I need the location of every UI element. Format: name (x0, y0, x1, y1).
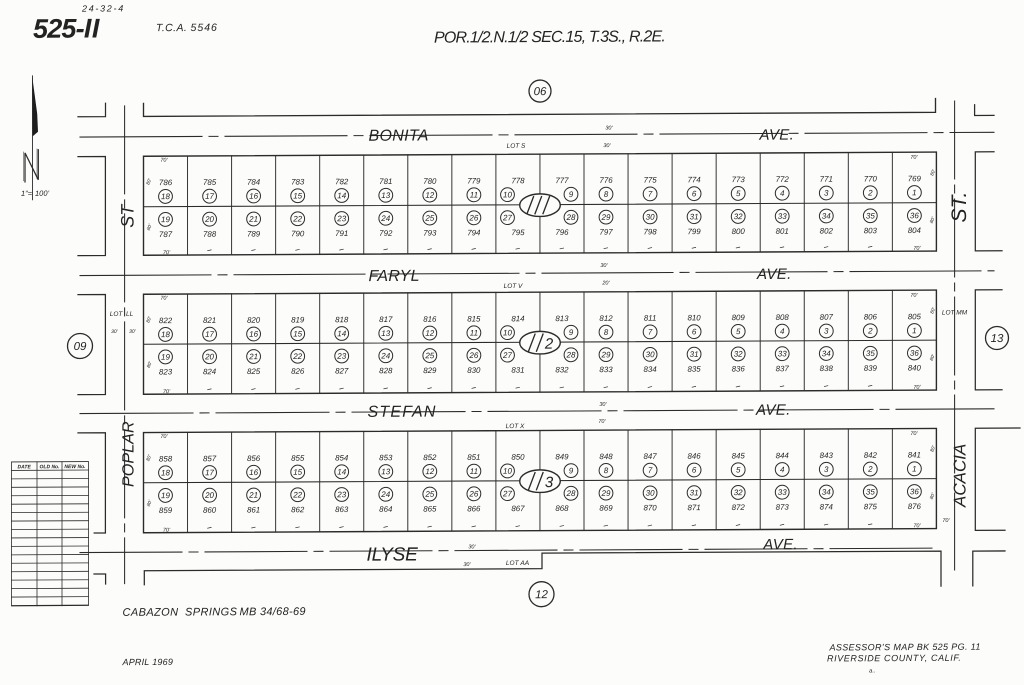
svg-text:12: 12 (425, 191, 434, 200)
svg-text:783: 783 (291, 177, 305, 186)
svg-text:27: 27 (502, 351, 512, 360)
svg-text:826: 826 (291, 367, 305, 376)
svg-text:781: 781 (379, 177, 392, 186)
svg-text:802: 802 (820, 226, 834, 235)
svg-text:70’: 70’ (160, 296, 168, 302)
svg-text:STEFAN: STEFAN (368, 404, 437, 421)
svg-text:30’: 30’ (111, 329, 119, 335)
svg-text:821: 821 (203, 316, 216, 325)
svg-text:36: 36 (910, 349, 919, 358)
svg-text:5: 5 (736, 189, 741, 198)
svg-text:17: 17 (205, 468, 214, 477)
svg-text:23: 23 (336, 490, 346, 499)
svg-text:777: 777 (555, 176, 569, 185)
svg-text:809: 809 (732, 313, 746, 322)
svg-text:25: 25 (424, 214, 434, 223)
svg-text:11: 11 (470, 190, 478, 199)
svg-text:836: 836 (732, 364, 746, 373)
svg-text:33: 33 (778, 488, 787, 497)
svg-text:LOT LL: LOT LL (110, 311, 134, 318)
svg-text:a..: a.. (869, 668, 876, 674)
svg-text:799: 799 (688, 227, 702, 236)
svg-text:22: 22 (292, 352, 302, 361)
svg-text:797: 797 (599, 228, 613, 237)
svg-text:19: 19 (161, 215, 170, 224)
svg-text:3: 3 (824, 327, 829, 336)
svg-text:14: 14 (337, 191, 346, 200)
svg-text:13: 13 (381, 329, 390, 338)
svg-text:70’: 70’ (910, 293, 918, 299)
svg-text:851: 851 (467, 453, 480, 462)
svg-text:LOT V: LOT V (504, 283, 523, 290)
svg-text:771: 771 (820, 175, 833, 184)
svg-text:24: 24 (380, 490, 390, 499)
svg-text:70’: 70’ (163, 528, 171, 534)
svg-text:818: 818 (335, 315, 349, 324)
svg-text:30: 30 (646, 489, 655, 498)
svg-text:852: 852 (423, 453, 437, 462)
svg-text:100’: 100’ (35, 189, 50, 198)
svg-text:792: 792 (379, 229, 393, 238)
svg-text:70’: 70’ (163, 250, 171, 256)
svg-text:1: 1 (912, 326, 916, 335)
svg-text:842: 842 (864, 451, 878, 460)
svg-text:30: 30 (646, 350, 655, 359)
svg-text:23: 23 (336, 352, 346, 361)
svg-text:787: 787 (159, 230, 173, 239)
svg-text:806: 806 (864, 312, 878, 321)
svg-text:21: 21 (248, 215, 258, 224)
svg-text:13: 13 (381, 467, 390, 476)
svg-text:33: 33 (778, 349, 787, 358)
svg-text:APRIL 1969: APRIL 1969 (122, 657, 174, 667)
svg-text:769: 769 (908, 174, 922, 183)
svg-text:20: 20 (204, 491, 214, 500)
svg-text:6: 6 (692, 189, 697, 198)
svg-text:813: 813 (555, 314, 569, 323)
svg-text:864: 864 (379, 505, 393, 514)
svg-text:70’: 70’ (910, 431, 918, 437)
svg-text:833: 833 (599, 365, 613, 374)
svg-text:2: 2 (867, 465, 873, 474)
svg-text:776: 776 (599, 176, 613, 185)
svg-text:29: 29 (601, 350, 611, 359)
svg-text:816: 816 (423, 315, 437, 324)
svg-text:12: 12 (425, 467, 434, 476)
svg-text:NEW No.: NEW No. (64, 464, 85, 470)
svg-text:70’: 70’ (913, 523, 921, 529)
svg-text:BONITA: BONITA (369, 127, 429, 144)
svg-text:825: 825 (247, 367, 261, 376)
svg-text:1: 1 (912, 188, 916, 197)
svg-text:32: 32 (734, 488, 743, 497)
svg-text:30’: 30’ (605, 125, 613, 131)
svg-text:30’: 30’ (600, 263, 608, 269)
svg-text:30’: 30’ (468, 544, 476, 550)
svg-text:831: 831 (511, 366, 524, 375)
svg-text:860: 860 (203, 506, 217, 515)
svg-text:11: 11 (470, 467, 478, 476)
svg-text:16: 16 (249, 192, 258, 201)
svg-text:8: 8 (604, 190, 609, 199)
svg-text:AVE.: AVE. (762, 536, 798, 553)
svg-text:9: 9 (569, 328, 574, 337)
svg-text:786: 786 (159, 178, 173, 187)
svg-text:838: 838 (820, 364, 834, 373)
svg-text:853: 853 (379, 453, 393, 462)
svg-text:850: 850 (511, 453, 525, 462)
svg-text:LOT X: LOT X (506, 423, 525, 430)
svg-text:819: 819 (291, 315, 305, 324)
svg-text:862: 862 (291, 505, 305, 514)
svg-text:12: 12 (535, 589, 548, 601)
svg-text:772: 772 (776, 175, 790, 184)
svg-text:788: 788 (203, 230, 217, 239)
svg-text:33: 33 (778, 212, 787, 221)
svg-text:870: 870 (643, 503, 657, 512)
svg-text:867: 867 (511, 504, 525, 513)
svg-text:9: 9 (569, 466, 574, 475)
svg-text:856: 856 (247, 454, 261, 463)
svg-text:2: 2 (867, 326, 873, 335)
svg-text:23: 23 (336, 214, 346, 223)
svg-text:7: 7 (648, 328, 653, 337)
svg-text:18: 18 (161, 330, 170, 339)
svg-text:16: 16 (249, 330, 258, 339)
svg-text:ILYSE: ILYSE (367, 544, 419, 565)
svg-text:ST: ST (118, 203, 138, 228)
svg-text:AVE.: AVE. (759, 127, 795, 144)
svg-text:13: 13 (991, 333, 1004, 345)
svg-text:10: 10 (503, 328, 512, 337)
svg-text:AVE.: AVE. (756, 266, 792, 283)
svg-text:16: 16 (249, 468, 258, 477)
svg-text:839: 839 (864, 364, 878, 373)
svg-text:19: 19 (161, 353, 170, 362)
svg-text:10: 10 (503, 467, 512, 476)
svg-text:871: 871 (688, 503, 701, 512)
svg-text:525-II: 525-II (33, 13, 100, 43)
svg-text:34: 34 (822, 488, 831, 497)
svg-text:844: 844 (776, 451, 790, 460)
svg-text:780: 780 (423, 177, 437, 186)
svg-text:70’: 70’ (913, 385, 921, 391)
svg-text:70’: 70’ (910, 155, 918, 161)
svg-text:CABAZONSPRINGSMB 34/68-69: CABAZONSPRINGSMB 34/68-69 (123, 606, 306, 619)
svg-text:2: 2 (867, 188, 873, 197)
svg-text:807: 807 (820, 313, 834, 322)
svg-text:875: 875 (864, 502, 878, 511)
svg-text:859: 859 (159, 506, 173, 515)
svg-text:805: 805 (908, 312, 922, 321)
svg-text:849: 849 (555, 452, 569, 461)
svg-text:773: 773 (732, 175, 746, 184)
svg-text:26: 26 (468, 489, 478, 498)
svg-text:845: 845 (732, 451, 746, 460)
svg-text:863: 863 (335, 505, 349, 514)
svg-text:31: 31 (690, 350, 699, 359)
svg-text:12: 12 (425, 329, 434, 338)
svg-text:775: 775 (643, 176, 657, 185)
svg-text:824: 824 (203, 367, 217, 376)
svg-text:785: 785 (203, 178, 217, 187)
svg-text:7: 7 (648, 466, 653, 475)
svg-text:823: 823 (159, 367, 173, 376)
svg-text:70’: 70’ (160, 158, 168, 164)
svg-text:855: 855 (291, 454, 305, 463)
svg-text:17: 17 (205, 330, 214, 339)
svg-text:1”=: 1”= (21, 189, 33, 198)
svg-text:857: 857 (203, 454, 217, 463)
svg-text:814: 814 (511, 314, 525, 323)
svg-text:874: 874 (820, 502, 834, 511)
svg-text:794: 794 (467, 228, 481, 237)
svg-text:798: 798 (643, 227, 657, 236)
svg-text:827: 827 (335, 366, 349, 375)
svg-text:14: 14 (337, 329, 346, 338)
svg-text:31: 31 (690, 488, 699, 497)
svg-text:70’: 70’ (163, 389, 171, 395)
svg-text:20’: 20’ (601, 281, 610, 287)
svg-text:06: 06 (534, 86, 547, 98)
svg-text:36: 36 (910, 211, 919, 220)
svg-text:835: 835 (688, 365, 702, 374)
svg-text:791: 791 (335, 229, 348, 238)
svg-text:15: 15 (293, 191, 302, 200)
svg-text:778: 778 (511, 176, 525, 185)
svg-text:FARYL: FARYL (369, 268, 420, 285)
svg-text:ASSESSOR’S MAP BK 525 PG. 11: ASSESSOR’S MAP BK 525 PG. 11 (829, 642, 981, 653)
svg-text:793: 793 (423, 229, 437, 238)
svg-text:3: 3 (824, 189, 829, 198)
svg-text:812: 812 (599, 314, 613, 323)
svg-text:815: 815 (467, 314, 481, 323)
svg-text:834: 834 (643, 365, 657, 374)
svg-text:36: 36 (910, 487, 919, 496)
svg-text:32: 32 (734, 212, 743, 221)
svg-text:808: 808 (776, 313, 790, 322)
svg-text:24: 24 (380, 214, 390, 223)
svg-text:810: 810 (688, 313, 702, 322)
svg-text:ST.: ST. (948, 192, 971, 223)
svg-text:25: 25 (424, 490, 434, 499)
svg-text:27: 27 (502, 489, 512, 498)
svg-text:21: 21 (248, 491, 258, 500)
svg-text:AVE.: AVE. (755, 402, 791, 419)
svg-text:35: 35 (866, 349, 875, 358)
svg-text:832: 832 (555, 365, 569, 374)
svg-text:6: 6 (692, 327, 697, 336)
svg-text:30’: 30’ (463, 562, 471, 568)
svg-text:35: 35 (866, 487, 875, 496)
svg-text:869: 869 (599, 504, 613, 513)
svg-text:854: 854 (335, 453, 349, 462)
svg-text:861: 861 (247, 505, 260, 514)
svg-text:803: 803 (864, 226, 878, 235)
svg-text:LOT S: LOT S (507, 143, 526, 150)
svg-text:822: 822 (159, 316, 173, 325)
svg-text:30’: 30’ (129, 329, 137, 335)
svg-text:10: 10 (503, 190, 512, 199)
svg-text:20: 20 (204, 215, 214, 224)
svg-text:820: 820 (247, 316, 261, 325)
svg-text:18: 18 (161, 468, 170, 477)
svg-text:17: 17 (205, 192, 214, 201)
svg-text:811: 811 (644, 314, 657, 323)
svg-text:19: 19 (161, 491, 170, 500)
svg-text:24: 24 (380, 351, 390, 360)
svg-text:34: 34 (822, 349, 831, 358)
svg-text:790: 790 (291, 229, 305, 238)
svg-text:796: 796 (555, 228, 569, 237)
svg-text:70’: 70’ (913, 246, 921, 252)
svg-text:25: 25 (424, 351, 434, 360)
svg-text:09: 09 (74, 341, 87, 353)
svg-text:1: 1 (912, 465, 916, 474)
svg-text:6: 6 (692, 466, 697, 475)
svg-text:ACACIA: ACACIA (951, 444, 970, 508)
svg-text:28: 28 (566, 350, 576, 359)
svg-text:4: 4 (780, 327, 785, 336)
svg-text:70’: 70’ (942, 518, 950, 524)
svg-text:770: 770 (864, 174, 878, 183)
svg-text:800: 800 (732, 227, 746, 236)
svg-text:779: 779 (467, 176, 481, 185)
svg-text:35: 35 (866, 211, 875, 220)
svg-text:829: 829 (423, 366, 437, 375)
svg-text:28: 28 (566, 213, 576, 222)
svg-text:OLD No.: OLD No. (40, 464, 60, 470)
svg-text:837: 837 (776, 364, 790, 373)
svg-text:70’: 70’ (160, 434, 168, 440)
svg-text:8: 8 (604, 466, 609, 475)
svg-text:817: 817 (379, 315, 393, 324)
svg-text:7: 7 (648, 190, 653, 199)
svg-text:27: 27 (502, 213, 512, 222)
svg-text:28: 28 (566, 489, 576, 498)
svg-text:70’: 70’ (598, 419, 606, 425)
svg-text:T.C.A. 5546: T.C.A. 5546 (156, 22, 218, 34)
svg-text:828: 828 (379, 366, 393, 375)
svg-text:801: 801 (776, 227, 789, 236)
svg-text:866: 866 (467, 504, 481, 513)
svg-text:11: 11 (470, 328, 478, 337)
svg-text:26: 26 (468, 213, 478, 222)
svg-text:782: 782 (335, 177, 349, 186)
svg-text:3: 3 (824, 465, 829, 474)
svg-text:5: 5 (736, 327, 741, 336)
svg-text:846: 846 (688, 452, 702, 461)
svg-text:868: 868 (555, 504, 569, 513)
svg-text:795: 795 (511, 228, 525, 237)
svg-text:26: 26 (468, 351, 478, 360)
svg-text:830: 830 (467, 366, 481, 375)
svg-text:847: 847 (643, 452, 657, 461)
svg-text:24-32-4: 24-32-4 (81, 3, 125, 13)
svg-text:8: 8 (604, 328, 609, 337)
svg-text:774: 774 (688, 175, 702, 184)
svg-text:2: 2 (544, 336, 554, 353)
svg-text:13: 13 (381, 191, 390, 200)
svg-text:14: 14 (337, 467, 346, 476)
svg-text:22: 22 (292, 490, 302, 499)
svg-text:29: 29 (601, 213, 611, 222)
svg-text:RIVERSIDE COUNTY, CALIF.: RIVERSIDE COUNTY, CALIF. (827, 653, 961, 664)
svg-text:15: 15 (293, 468, 302, 477)
svg-text:32: 32 (734, 350, 743, 359)
svg-text:20: 20 (204, 352, 214, 361)
svg-text:840: 840 (908, 363, 922, 372)
svg-text:841: 841 (908, 450, 921, 459)
svg-text:30: 30 (646, 213, 655, 222)
svg-text:15: 15 (293, 329, 302, 338)
svg-text:784: 784 (247, 178, 261, 187)
svg-text:843: 843 (820, 451, 834, 460)
svg-text:872: 872 (732, 503, 746, 512)
svg-text:30’: 30’ (599, 402, 607, 408)
svg-text:18: 18 (161, 192, 170, 201)
svg-text:858: 858 (159, 454, 173, 463)
svg-text:LOT AA: LOT AA (506, 560, 529, 567)
svg-text:22: 22 (292, 214, 302, 223)
svg-text:30’: 30’ (603, 143, 611, 149)
svg-text:31: 31 (690, 212, 699, 221)
svg-text:DATE: DATE (18, 464, 32, 470)
svg-text:4: 4 (780, 189, 785, 198)
svg-text:865: 865 (423, 505, 437, 514)
svg-text:876: 876 (908, 502, 922, 511)
svg-text:34: 34 (822, 212, 831, 221)
svg-text:848: 848 (599, 452, 613, 461)
svg-text:873: 873 (776, 503, 790, 512)
svg-text:789: 789 (247, 229, 261, 238)
svg-text:4: 4 (780, 465, 785, 474)
svg-text:LOT MM: LOT MM (942, 309, 968, 316)
svg-text:POR.1/2.N.1/2 SEC.15, T.3S., R: POR.1/2.N.1/2 SEC.15, T.3S., R.2E. (434, 28, 665, 46)
svg-text:3: 3 (545, 474, 554, 491)
svg-text:5: 5 (736, 465, 741, 474)
svg-text:804: 804 (908, 226, 922, 235)
svg-text:9: 9 (569, 190, 574, 199)
svg-text:21: 21 (248, 352, 258, 361)
svg-text:POPLAR: POPLAR (120, 421, 138, 487)
svg-text:29: 29 (601, 489, 611, 498)
